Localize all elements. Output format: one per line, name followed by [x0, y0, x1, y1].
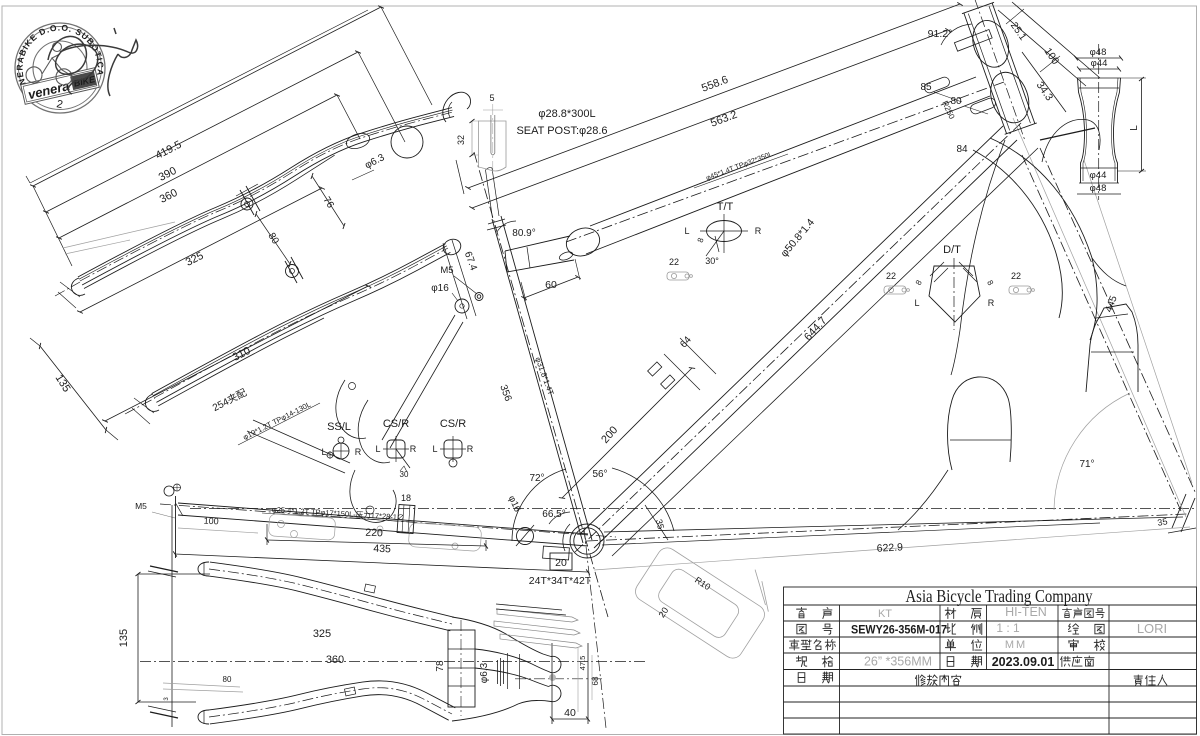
- svg-text:622.9: 622.9: [876, 541, 903, 554]
- svg-text:R10: R10: [693, 575, 712, 592]
- svg-text:435: 435: [373, 543, 391, 556]
- svg-text:CS/R: CS/R: [383, 418, 409, 430]
- svg-text:CS/R: CS/R: [440, 418, 466, 430]
- svg-text:T/T: T/T: [717, 201, 734, 213]
- svg-text:22: 22: [886, 271, 896, 281]
- svg-text:78: 78: [435, 660, 446, 672]
- svg-text:325: 325: [313, 628, 331, 640]
- svg-text:85: 85: [920, 82, 932, 93]
- svg-text:SEWY26-356M-017: SEWY26-356M-017: [851, 625, 947, 637]
- svg-text:390: 390: [157, 165, 179, 184]
- svg-text:L: L: [684, 226, 689, 236]
- svg-text:R: R: [467, 444, 474, 454]
- svg-text:φ50.8*1.4: φ50.8*1.4: [778, 217, 817, 260]
- svg-text:25.1: 25.1: [1008, 20, 1028, 43]
- svg-text:76: 76: [321, 195, 336, 211]
- svg-text:φ31.8*1.4T: φ31.8*1.4T: [533, 356, 555, 397]
- svg-text:R: R: [355, 447, 362, 457]
- svg-text:HI-TEN: HI-TEN: [1005, 605, 1047, 619]
- svg-text:100: 100: [1042, 46, 1062, 67]
- svg-text:135: 135: [118, 629, 130, 647]
- svg-text:R: R: [410, 444, 417, 454]
- svg-text:30: 30: [400, 470, 409, 479]
- svg-text:47.5: 47.5: [578, 656, 587, 671]
- svg-text:71°: 71°: [1079, 459, 1094, 470]
- svg-text:φ16: φ16: [506, 494, 523, 514]
- svg-text:φ48: φ48: [1090, 183, 1107, 194]
- svg-text:40: 40: [564, 707, 576, 719]
- svg-text:35: 35: [1157, 516, 1169, 528]
- svg-text:M5: M5: [135, 501, 147, 511]
- svg-text:254夹配: 254夹配: [210, 386, 249, 414]
- svg-text:2023.09.01: 2023.09.01: [992, 655, 1055, 669]
- svg-text:135: 135: [53, 372, 73, 394]
- svg-text:30°: 30°: [705, 256, 719, 266]
- svg-text:80: 80: [950, 96, 962, 107]
- svg-text:325: 325: [184, 250, 206, 269]
- svg-text:L: L: [914, 298, 919, 308]
- svg-text:Asia Bicycle Trading Company: Asia Bicycle Trading Company: [906, 586, 1093, 606]
- svg-text:L: L: [321, 447, 326, 457]
- svg-text:80: 80: [266, 231, 281, 247]
- svg-text:φ16: φ16: [431, 283, 449, 294]
- svg-text:φ6.3: φ6.3: [363, 152, 387, 171]
- svg-text:φ25.4*1.2T TPφ17*150L-压力17*28-: φ25.4*1.2T TPφ17*150L-压力17*28-1∅: [272, 504, 405, 522]
- svg-text:8: 8: [985, 279, 995, 288]
- svg-text:8: 8: [696, 236, 706, 244]
- svg-text:35: 35: [654, 518, 666, 530]
- svg-text:L: L: [375, 444, 380, 454]
- svg-text:5: 5: [489, 93, 494, 103]
- svg-text:72°: 72°: [529, 473, 544, 484]
- svg-text:L: L: [432, 444, 437, 454]
- svg-text:563.2: 563.2: [709, 109, 739, 130]
- svg-text:φ45*1.4T TPφ32*350L: φ45*1.4T TPφ32*350L: [705, 151, 773, 182]
- svg-text:64: 64: [678, 334, 694, 350]
- svg-text:20: 20: [657, 605, 671, 619]
- svg-text:80.9°: 80.9°: [512, 228, 535, 239]
- svg-text:100: 100: [203, 516, 219, 527]
- svg-text:644.7: 644.7: [802, 315, 829, 343]
- svg-text:SEAT POST:φ28.6: SEAT POST:φ28.6: [516, 125, 607, 137]
- svg-text:8: 8: [914, 278, 924, 287]
- svg-text:24T*34T*42T: 24T*34T*42T: [529, 575, 592, 587]
- svg-text:80: 80: [223, 675, 232, 684]
- svg-text:φ28.8*300L: φ28.8*300L: [538, 108, 595, 120]
- svg-text:SS/L: SS/L: [327, 421, 351, 433]
- svg-text:φ44: φ44: [1090, 170, 1107, 181]
- svg-text:22: 22: [669, 257, 679, 267]
- svg-text:220: 220: [365, 527, 383, 540]
- svg-text:356: 356: [497, 383, 513, 403]
- svg-text:φ19*1.2T TPφ14-130L: φ19*1.2T TPφ14-130L: [241, 400, 312, 442]
- svg-text:60: 60: [545, 279, 557, 291]
- svg-text:3: 3: [164, 697, 170, 701]
- svg-text:84: 84: [956, 144, 968, 155]
- svg-text:419.5: 419.5: [154, 139, 184, 162]
- svg-text:67.4: 67.4: [462, 250, 479, 272]
- svg-text:360: 360: [326, 654, 344, 666]
- svg-text:R: R: [988, 298, 995, 308]
- svg-text:KT: KT: [878, 608, 892, 620]
- svg-text:D/T: D/T: [943, 244, 961, 256]
- svg-text:32: 32: [456, 135, 466, 145]
- svg-text:445: 445: [1104, 294, 1120, 314]
- svg-text:360: 360: [158, 187, 180, 206]
- svg-text:18: 18: [401, 493, 411, 503]
- svg-text:M5: M5: [440, 265, 453, 276]
- svg-text:26” *356MM: 26” *356MM: [864, 655, 932, 669]
- svg-text:φ48: φ48: [1090, 47, 1107, 58]
- svg-text:34.3: 34.3: [1034, 79, 1056, 103]
- svg-text:L: L: [1129, 125, 1140, 131]
- svg-text:R: R: [755, 226, 762, 236]
- svg-text:68: 68: [591, 676, 600, 685]
- svg-text:1 : 1: 1 : 1: [996, 621, 1020, 635]
- svg-text:22: 22: [1011, 271, 1021, 281]
- svg-text:LORI: LORI: [1137, 621, 1167, 636]
- svg-text:MM: MM: [1005, 639, 1027, 651]
- svg-text:φ6.3: φ6.3: [479, 662, 490, 683]
- svg-text:56°: 56°: [592, 469, 607, 480]
